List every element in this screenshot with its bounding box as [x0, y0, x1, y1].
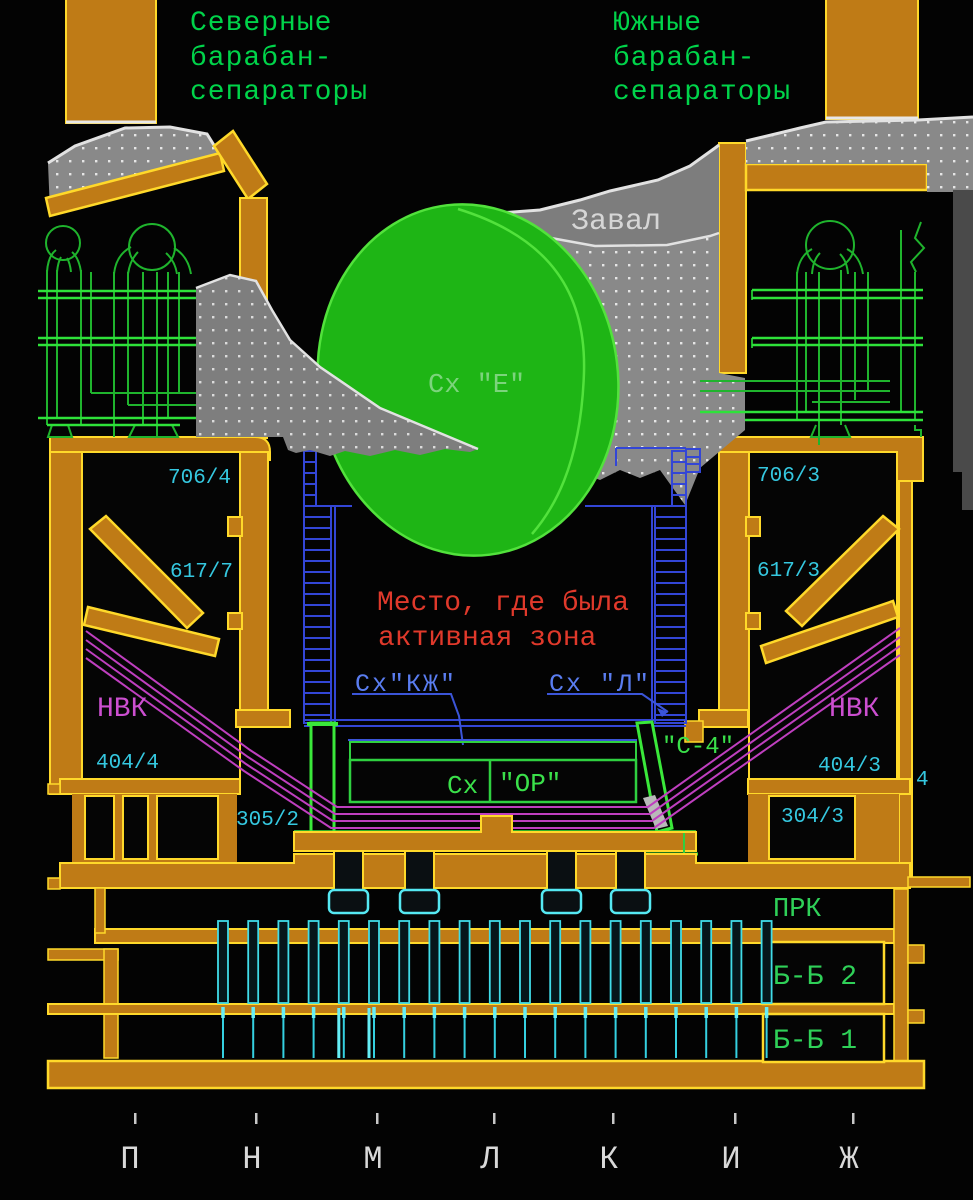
- svg-text:сепараторы: сепараторы: [613, 77, 791, 108]
- svg-text:Б-Б 1: Б-Б 1: [773, 1026, 857, 1057]
- svg-text:барабан-: барабан-: [613, 43, 755, 74]
- svg-text:НВК: НВК: [97, 694, 148, 725]
- svg-text:Северные: Северные: [190, 8, 332, 39]
- svg-text:Место, где была: Место, где была: [377, 588, 629, 619]
- svg-text:404/4: 404/4: [96, 752, 159, 775]
- svg-text:305/2: 305/2: [236, 809, 299, 832]
- svg-text:барабан-: барабан-: [190, 43, 332, 74]
- svg-text:″ОР″: ″ОР″: [499, 769, 561, 799]
- svg-text:Южные: Южные: [613, 8, 702, 39]
- svg-text:сепараторы: сепараторы: [190, 77, 368, 108]
- svg-text:617/7: 617/7: [170, 561, 233, 584]
- svg-text:Сх: Сх: [447, 771, 478, 801]
- svg-text:И: И: [721, 1141, 740, 1178]
- svg-text:706/4: 706/4: [168, 467, 231, 490]
- svg-text:″С-4″: ″С-4″: [662, 734, 734, 761]
- svg-text:М: М: [363, 1141, 382, 1178]
- svg-text:4: 4: [916, 769, 929, 792]
- svg-text:ПРК: ПРК: [773, 895, 822, 925]
- svg-text:П: П: [120, 1141, 139, 1178]
- svg-text:Сх ″Е″: Сх ″Е″: [428, 371, 525, 401]
- svg-text:Ж: Ж: [839, 1141, 859, 1178]
- svg-text:Б-Б 2: Б-Б 2: [773, 962, 857, 993]
- svg-text:К: К: [599, 1141, 618, 1178]
- svg-text:617/3: 617/3: [757, 560, 820, 583]
- svg-text:Н: Н: [242, 1141, 261, 1178]
- svg-text:404/3: 404/3: [818, 755, 881, 778]
- svg-text:активная зона: активная зона: [378, 623, 596, 654]
- svg-text:304/3: 304/3: [781, 806, 844, 829]
- svg-text:706/3: 706/3: [757, 465, 820, 488]
- svg-text:НВК: НВК: [829, 694, 880, 725]
- svg-text:Л: Л: [479, 1141, 499, 1178]
- svg-text:Завал: Завал: [571, 205, 661, 239]
